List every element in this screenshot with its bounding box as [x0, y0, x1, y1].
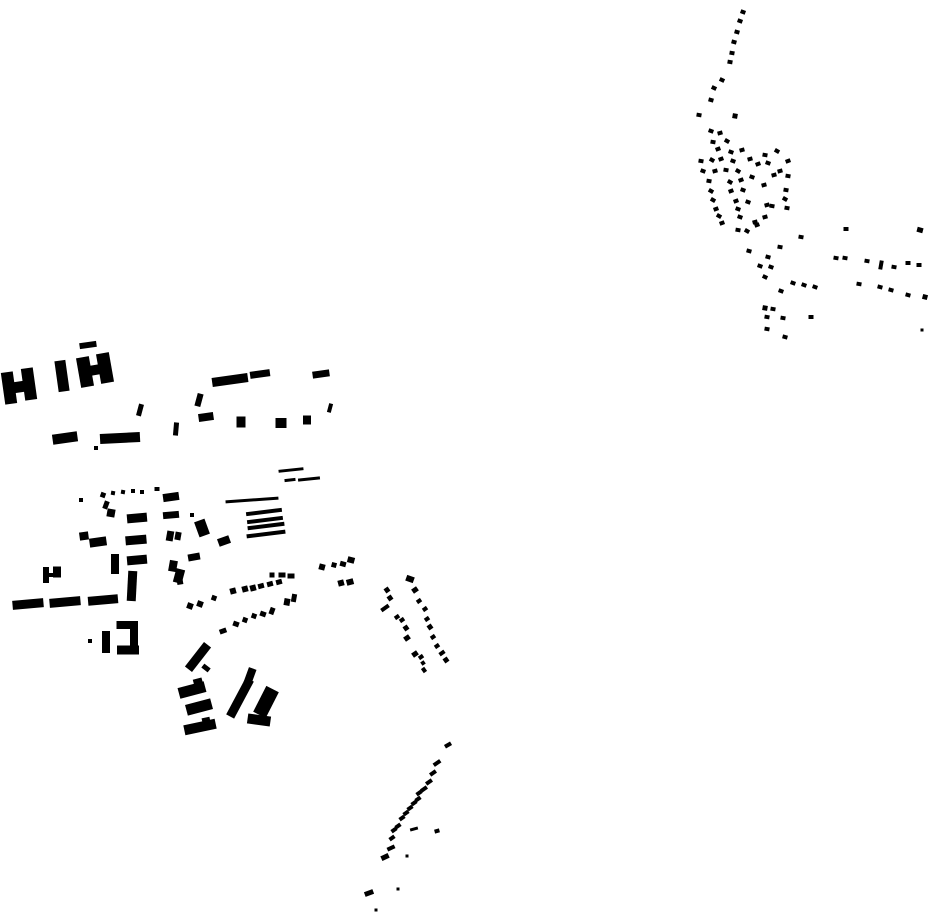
- building-footprint: [711, 85, 717, 91]
- building-footprint: [12, 598, 44, 610]
- building-footprint: [856, 282, 862, 287]
- building-footprint: [801, 282, 807, 287]
- building-footprint: [312, 369, 330, 378]
- building-footprint: [331, 562, 337, 568]
- building-footprint: [47, 573, 57, 577]
- building-footprint: [327, 403, 333, 413]
- building-footprint: [380, 853, 389, 861]
- building-footprint: [765, 160, 771, 165]
- building-footprint: [278, 467, 303, 473]
- building-footprint: [163, 492, 180, 502]
- building-footprint: [922, 294, 928, 300]
- building-footprint: [737, 18, 743, 23]
- building-footprint: [102, 631, 110, 653]
- building-footprint: [127, 571, 138, 601]
- building-footprint: [906, 261, 911, 265]
- building-footprint: [136, 404, 144, 417]
- building-footprint: [88, 639, 92, 643]
- building-footprint: [185, 698, 213, 715]
- building-footprint: [747, 156, 753, 161]
- building-footprint: [762, 153, 768, 158]
- building-footprint: [246, 530, 285, 539]
- building-footprint: [729, 51, 735, 56]
- building-footprint: [339, 561, 346, 567]
- building-footprint: [399, 617, 405, 623]
- building-footprint: [809, 315, 814, 319]
- building-footprint: [735, 206, 741, 211]
- building-footprint: [283, 598, 290, 606]
- building-footprint: [749, 174, 755, 179]
- building-footprint: [198, 412, 214, 422]
- building-footprint: [380, 604, 390, 612]
- building-footprint: [225, 497, 278, 504]
- building-footprint: [443, 657, 450, 664]
- building-footprint: [425, 778, 433, 785]
- building-footprint: [735, 168, 741, 174]
- building-footprint: [250, 369, 271, 379]
- building-footprint: [246, 508, 282, 516]
- building-footprint: [700, 168, 706, 173]
- building-footprint: [249, 584, 256, 591]
- building-footprint: [777, 245, 783, 250]
- building-footprint: [774, 148, 780, 154]
- building-footprint: [52, 431, 78, 444]
- building-footprint: [716, 213, 722, 219]
- building-footprint: [229, 587, 236, 594]
- building-footprint: [444, 742, 452, 749]
- building-footprint: [237, 417, 246, 428]
- building-footprint: [755, 161, 761, 166]
- building-footprint: [211, 595, 217, 601]
- building-footprint: [298, 476, 320, 481]
- building-footprint: [79, 341, 97, 349]
- building-footprint: [888, 287, 894, 292]
- building-footprint: [728, 188, 734, 193]
- building-footprint: [219, 627, 227, 634]
- building-footprint: [717, 130, 723, 135]
- building-footprint: [434, 643, 440, 649]
- building-footprint: [764, 327, 770, 332]
- building-footprint: [131, 489, 135, 493]
- building-footprint: [737, 214, 743, 219]
- building-footprint: [790, 280, 796, 285]
- region-southeast-subcluster: [762, 280, 818, 339]
- building-footprint: [713, 206, 719, 211]
- building-footprint: [745, 199, 751, 204]
- building-footprint: [762, 305, 768, 311]
- building-footprint: [284, 478, 295, 482]
- building-footprint: [418, 654, 424, 660]
- building-footprint: [194, 519, 210, 538]
- building-footprint: [746, 248, 752, 253]
- building-footprint: [433, 759, 442, 767]
- building-footprint: [364, 889, 374, 897]
- building-footprint: [727, 179, 733, 185]
- building-footprint: [770, 307, 776, 312]
- building-footprint: [917, 263, 922, 267]
- building-footprint: [411, 650, 419, 658]
- region-south-village-blocks: [178, 642, 279, 735]
- building-footprint: [429, 769, 437, 776]
- building-footprint: [106, 508, 115, 517]
- building-footprint: [183, 719, 216, 735]
- building-footprint: [731, 39, 737, 44]
- building-footprint: [762, 214, 768, 219]
- building-footprint: [706, 179, 712, 184]
- building-footprint: [410, 827, 419, 832]
- building-footprint: [812, 284, 818, 289]
- building-footprint: [397, 888, 400, 891]
- building-footprint: [387, 844, 396, 851]
- building-footprint: [196, 600, 204, 608]
- building-footprint: [430, 634, 436, 640]
- building-footprint: [764, 315, 770, 320]
- building-footprint: [422, 606, 428, 612]
- building-footprint: [427, 624, 434, 631]
- building-footprint: [739, 147, 745, 152]
- building-footprint: [740, 187, 746, 192]
- region-central-village: [12, 487, 231, 655]
- building-footprint: [708, 128, 714, 133]
- map-viewport: [0, 0, 930, 924]
- building-footprint: [782, 334, 788, 339]
- building-footprint: [724, 138, 730, 144]
- building-footprint: [719, 220, 725, 225]
- building-footprint: [279, 573, 286, 578]
- building-footprint: [905, 292, 911, 297]
- building-footprint: [718, 156, 724, 161]
- building-footprint: [187, 553, 200, 562]
- building-footprint: [288, 574, 295, 579]
- building-footprint: [127, 513, 148, 524]
- building-footprint: [127, 555, 148, 566]
- building-footprint: [251, 613, 257, 619]
- building-footprint: [833, 256, 839, 261]
- building-footprint: [259, 611, 266, 618]
- building-footprint: [424, 616, 430, 622]
- building-footprint: [785, 174, 791, 179]
- building-footprint: [337, 579, 344, 586]
- building-footprint: [125, 535, 147, 546]
- building-footprint: [735, 228, 741, 233]
- building-footprint: [916, 227, 923, 233]
- building-footprint: [771, 172, 777, 177]
- building-footprint: [268, 607, 275, 615]
- building-footprint: [253, 686, 279, 718]
- building-footprint: [421, 667, 427, 673]
- region-east-road-trail: [746, 227, 928, 332]
- region-northeast-road-trail: [696, 9, 746, 119]
- building-footprint: [94, 446, 98, 450]
- building-footprint: [173, 422, 179, 435]
- building-footprint: [698, 159, 704, 164]
- building-footprint: [244, 667, 257, 685]
- region-central-stripes: [246, 508, 286, 539]
- building-footprint: [387, 595, 394, 602]
- building-footprint: [877, 284, 883, 289]
- building-footprint: [778, 288, 784, 293]
- building-footprint: [842, 256, 848, 261]
- building-footprint: [757, 263, 763, 268]
- building-footprint: [155, 487, 160, 491]
- building-footprint: [276, 418, 287, 428]
- building-footprint: [864, 259, 870, 264]
- building-footprint: [186, 602, 194, 610]
- building-footprint: [190, 513, 194, 517]
- building-footprint: [270, 573, 275, 578]
- building-footprint: [201, 664, 210, 673]
- region-central-dotted-arcs: [177, 556, 415, 634]
- building-footprint: [375, 909, 378, 912]
- building-footprint: [111, 491, 116, 496]
- building-footprint: [347, 556, 355, 564]
- building-footprint: [117, 646, 139, 655]
- building-footprint: [217, 535, 231, 547]
- building-footprint: [275, 579, 282, 585]
- building-footprint: [744, 228, 750, 234]
- building-footprint: [762, 274, 768, 280]
- building-footprint: [730, 158, 736, 163]
- region-central-double-dotted-trail: [380, 586, 449, 673]
- building-footprint: [266, 581, 273, 587]
- building-footprint: [166, 530, 175, 541]
- building-footprint: [734, 29, 740, 34]
- building-footprint: [438, 650, 445, 657]
- building-footprint: [784, 206, 790, 211]
- building-footprint: [54, 360, 69, 392]
- building-footprint: [434, 828, 440, 833]
- building-footprint: [798, 235, 804, 240]
- building-footprint: [723, 168, 729, 173]
- building-footprint: [719, 77, 725, 83]
- building-footprint: [696, 113, 702, 118]
- building-footprint: [89, 536, 107, 547]
- building-footprint: [121, 490, 126, 495]
- building-footprint: [780, 316, 786, 321]
- building-footprint: [194, 393, 203, 407]
- building-footprint: [174, 532, 181, 541]
- building-footprint: [411, 586, 419, 594]
- building-footprint: [878, 260, 884, 270]
- building-footprint: [346, 578, 354, 586]
- building-footprint: [177, 579, 184, 585]
- building-footprint: [708, 97, 714, 102]
- building-footprint: [88, 594, 119, 606]
- building-footprint: [403, 625, 410, 632]
- building-footprint: [416, 598, 422, 604]
- building-footprint: [100, 432, 140, 444]
- building-footprint: [405, 575, 415, 583]
- building-footprint: [232, 621, 239, 628]
- building-footprint: [769, 204, 775, 209]
- building-footprint: [891, 265, 897, 270]
- building-footprint: [420, 660, 426, 666]
- building-footprint: [100, 492, 106, 498]
- building-footprint: [303, 416, 311, 425]
- building-footprint: [111, 554, 119, 574]
- building-footprint: [708, 188, 714, 194]
- building-footprint: [782, 196, 788, 202]
- building-footprint: [738, 177, 744, 182]
- region-west-letter-blocks: [1, 341, 114, 405]
- building-footprint: [715, 146, 721, 151]
- building-footprint: [764, 202, 770, 207]
- region-northeast-settlement-grid: [698, 128, 791, 234]
- building-footprint: [140, 490, 144, 494]
- building-footprint: [241, 585, 248, 592]
- building-footprint: [388, 835, 395, 842]
- building-footprint: [710, 140, 716, 145]
- building-footprint: [733, 198, 739, 203]
- building-footprint: [384, 587, 391, 594]
- building-footprint: [242, 617, 248, 623]
- building-footprint: [102, 500, 109, 509]
- building-footprint: [318, 563, 325, 570]
- building-footprint: [49, 596, 81, 608]
- building-footprint: [212, 373, 249, 387]
- building-footprint-map: [0, 0, 930, 924]
- building-footprint: [921, 329, 924, 332]
- building-footprint: [79, 531, 89, 540]
- building-footprint: [163, 511, 180, 519]
- region-central-thin-lines: [225, 467, 320, 503]
- building-footprint: [291, 594, 297, 603]
- building-footprint: [783, 188, 789, 193]
- building-footprint: [394, 614, 400, 620]
- building-footprint: [761, 182, 767, 187]
- building-footprint: [844, 227, 849, 231]
- building-footprint: [740, 9, 746, 14]
- building-footprint: [727, 60, 733, 65]
- building-footprint: [709, 157, 715, 163]
- building-footprint: [247, 713, 271, 726]
- region-south-road-trail: [364, 742, 452, 912]
- building-footprint: [403, 634, 411, 642]
- building-footprint: [768, 264, 774, 269]
- region-central-north-row: [52, 369, 333, 450]
- building-footprint: [785, 158, 791, 163]
- building-footprint: [765, 254, 771, 259]
- building-footprint: [710, 197, 716, 203]
- building-footprint: [732, 113, 738, 119]
- building-footprint: [712, 168, 718, 173]
- building-footprint: [728, 149, 734, 154]
- building-footprint: [406, 855, 409, 858]
- building-footprint: [777, 168, 783, 173]
- building-footprint: [257, 583, 264, 589]
- building-footprint: [79, 498, 83, 502]
